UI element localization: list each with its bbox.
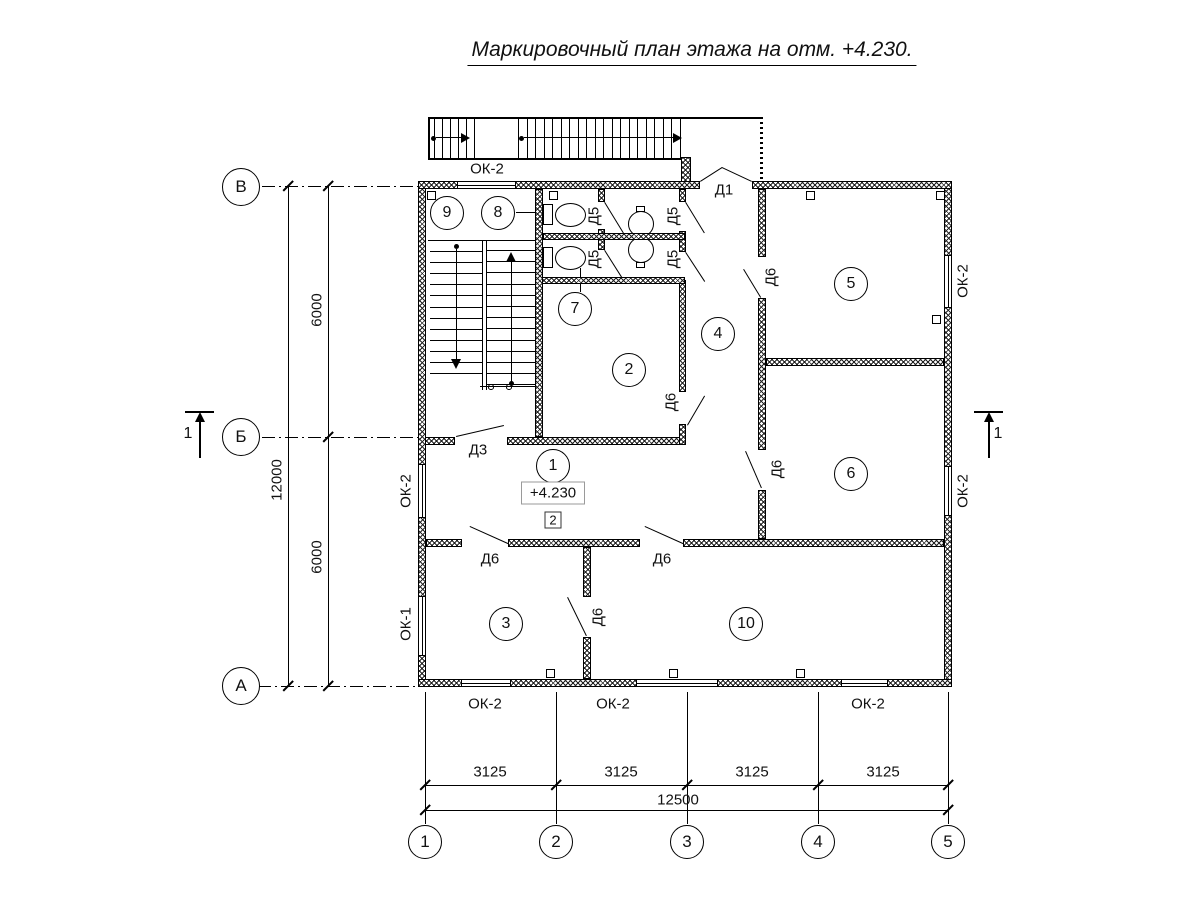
wall-segment <box>944 307 952 467</box>
stair-tread <box>603 117 604 159</box>
stair-tread <box>629 117 630 159</box>
floor-plan-sheet: Маркировочный план этажа на отм. +4.230.… <box>0 0 1200 900</box>
wall-segment <box>679 189 686 202</box>
stair-tread <box>430 295 482 296</box>
door-leaf-line <box>456 425 504 437</box>
room-circle-8: 8 <box>481 196 515 230</box>
wall-segment <box>418 679 462 687</box>
sink-basin <box>628 237 654 263</box>
vent-square <box>806 191 815 200</box>
window-opening <box>462 679 510 687</box>
floor-type-mark: 2 <box>545 512 562 529</box>
vent-square <box>546 669 555 678</box>
wall-segment <box>418 181 458 189</box>
stair-tread <box>487 351 535 352</box>
stair-tread <box>430 329 482 330</box>
stair-arrow-line <box>456 249 457 366</box>
stair-tread <box>430 273 482 274</box>
dim-bottom-segment: 3125 <box>473 765 506 780</box>
stair-tread <box>586 117 587 159</box>
window-label-ok2: ОК-2 <box>956 474 971 508</box>
stair-tread <box>487 295 535 296</box>
stair-tread <box>487 261 535 262</box>
window-label-ok1: ОК-1 <box>399 607 414 641</box>
stair-tread <box>487 340 535 341</box>
room-circle-5: 5 <box>834 267 868 301</box>
axis-col-3: 3 <box>670 825 704 859</box>
stair-stringer <box>482 240 483 390</box>
axis-extension-line <box>948 692 949 824</box>
toilet-bowl <box>555 246 586 270</box>
stair-tread <box>637 117 638 159</box>
door-leaf-line <box>743 269 761 298</box>
stair-tread <box>535 117 536 159</box>
axis-row-v: В <box>222 168 260 206</box>
window-opening <box>637 679 717 687</box>
stair-tread <box>430 351 482 352</box>
stair-outline <box>428 117 762 119</box>
stair-tread <box>434 117 435 159</box>
stair-tread <box>487 284 535 285</box>
room-circle-10: 10 <box>729 607 763 641</box>
wall-segment <box>426 539 462 547</box>
stair-landing-rail <box>760 117 763 181</box>
door-label-d1: Д1 <box>715 183 734 198</box>
toilet-tank <box>543 247 553 268</box>
stair-landing-edge <box>480 386 535 387</box>
axis-col-2: 2 <box>539 825 573 859</box>
wall-segment <box>758 490 766 539</box>
stair-outline <box>428 158 690 160</box>
section-mark-label: 1 <box>994 426 1003 442</box>
marker-dot <box>454 244 459 249</box>
wall-segment <box>583 547 591 597</box>
stair-tread <box>458 117 459 159</box>
wall-segment <box>515 181 700 189</box>
door-leaf-line <box>685 252 705 282</box>
room-circle-1: 1 <box>536 449 570 483</box>
window-label-ok2: ОК-2 <box>851 697 885 712</box>
stair-tread <box>430 318 482 319</box>
vent-square <box>549 191 558 200</box>
door-label-d5: Д5 <box>666 207 681 226</box>
wall-segment <box>681 157 691 183</box>
axis-row-a: А <box>222 667 260 705</box>
window-label-ok2: ОК-2 <box>596 697 630 712</box>
door-label-d5: Д5 <box>587 207 602 226</box>
stair-tread <box>487 328 535 329</box>
vent-square <box>796 669 805 678</box>
stair-tread <box>527 117 528 159</box>
door-label-d3: Д3 <box>469 443 488 458</box>
axis-line <box>262 437 418 438</box>
wall-segment <box>418 181 426 465</box>
stair-tread <box>430 284 482 285</box>
room-circle-6: 6 <box>834 457 868 491</box>
window-label-ok2: ОК-2 <box>399 474 414 508</box>
door-label-d6: Д6 <box>770 460 785 479</box>
stair-tread <box>620 117 621 159</box>
wall-segment <box>766 358 944 366</box>
stair-tread <box>487 384 535 385</box>
stair-tread <box>680 117 681 159</box>
stair-tread <box>654 117 655 159</box>
axis-row-b: Б <box>222 418 260 456</box>
wall-segment <box>717 679 842 687</box>
door-leaf-line <box>745 451 762 488</box>
door-leaf-line <box>567 597 587 637</box>
window-opening <box>418 465 426 517</box>
toilet-bowl <box>555 203 586 227</box>
stair-tread <box>442 117 443 159</box>
door-label-d5: Д5 <box>587 250 602 269</box>
stair-tread <box>430 340 482 341</box>
stair-tread <box>544 117 545 159</box>
door-label-d5: Д5 <box>666 250 681 269</box>
wall-segment <box>535 277 685 284</box>
stair-tread <box>474 117 475 159</box>
stair-outline <box>428 117 430 159</box>
stair-tread <box>663 117 664 159</box>
dim-bottom-segment: 3125 <box>735 765 768 780</box>
stair-tread <box>430 251 482 252</box>
axis-extension-line <box>818 692 819 824</box>
stair-tread <box>646 117 647 159</box>
wall-segment <box>583 637 591 679</box>
stair-stringer <box>486 240 487 390</box>
window-label-ok2: ОК-2 <box>470 162 504 177</box>
stair-tread <box>595 117 596 159</box>
wall-segment <box>679 424 686 445</box>
axis-extension-line <box>556 692 557 824</box>
window-label-ok2: ОК-2 <box>468 697 502 712</box>
wall-segment <box>944 515 952 687</box>
leader-line <box>516 212 536 213</box>
axis-extension-line <box>425 692 426 824</box>
stair-tread <box>430 262 482 263</box>
stair-tread <box>569 117 570 159</box>
section-mark-line <box>988 414 990 458</box>
drawing-title: Маркировочный план этажа на отм. +4.230. <box>467 38 916 66</box>
dim-bottom-segment: 3125 <box>866 765 899 780</box>
wall-segment <box>944 181 952 256</box>
section-mark-label: 1 <box>184 426 193 442</box>
section-mark-bar <box>185 411 214 413</box>
wall-segment <box>507 437 686 445</box>
wall-segment <box>758 189 766 257</box>
axis-col-4: 4 <box>801 825 835 859</box>
stair-tread <box>430 307 482 308</box>
stair-outline <box>428 240 535 241</box>
wall-segment <box>508 539 640 547</box>
stair-tread <box>487 362 535 363</box>
marker-dot <box>519 136 524 141</box>
window-opening <box>842 679 887 687</box>
dim-left-total: 12000 <box>270 459 285 501</box>
door-leaf-line <box>470 526 508 544</box>
stair-tread <box>518 117 519 159</box>
wall-segment <box>758 298 766 450</box>
window-opening <box>418 597 426 655</box>
wall-segment <box>510 679 637 687</box>
section-mark-line <box>199 414 201 458</box>
wall-segment <box>418 517 426 597</box>
wall-segment <box>598 189 605 202</box>
window-label-ok2: ОК-2 <box>956 264 971 298</box>
stair-tread <box>487 250 535 251</box>
room-circle-9: 9 <box>430 196 464 230</box>
dim-bottom-total: 12500 <box>657 793 699 808</box>
wall-segment <box>683 539 944 547</box>
axis-col-5: 5 <box>931 825 965 859</box>
wall-segment <box>543 233 685 240</box>
window-opening <box>944 467 952 515</box>
wall-segment <box>679 280 686 392</box>
window-opening <box>944 256 952 307</box>
door-label-d6: Д6 <box>591 608 606 627</box>
stair-tread <box>450 117 451 159</box>
stair-tread <box>430 373 482 374</box>
door-label-d6: Д6 <box>481 552 500 567</box>
wall-segment <box>752 181 952 189</box>
vent-square <box>427 191 436 200</box>
stair-tread <box>578 117 579 159</box>
stair-tread <box>612 117 613 159</box>
stair-arrow-line <box>436 137 468 138</box>
door-label-d6: Д6 <box>653 552 672 567</box>
toilet-tank <box>543 204 553 225</box>
wall-segment <box>887 679 952 687</box>
stair-tread <box>561 117 562 159</box>
stair-tread <box>430 362 482 363</box>
stair-tread <box>671 117 672 159</box>
window-opening <box>458 181 515 189</box>
vent-square <box>932 315 941 324</box>
door-leaf-line <box>721 167 751 182</box>
room-circle-3: 3 <box>489 607 523 641</box>
dim-left-segment: 6000 <box>310 540 325 573</box>
door-leaf-line <box>604 202 624 233</box>
door-label-d6: Д6 <box>664 393 679 412</box>
section-mark-bar <box>974 411 1003 413</box>
stair-tread <box>466 117 467 159</box>
stair-tread <box>487 317 535 318</box>
door-leaf-line <box>700 167 723 182</box>
door-leaf-line <box>687 396 705 426</box>
dim-left-segment: 6000 <box>310 293 325 326</box>
wall-segment <box>535 189 543 437</box>
axis-line <box>262 186 418 187</box>
dim-bottom-segment: 3125 <box>604 765 637 780</box>
stair-tread <box>487 373 535 374</box>
door-leaf-line <box>685 202 705 233</box>
room-circle-4: 4 <box>701 317 735 351</box>
door-leaf-line <box>645 526 683 544</box>
room-circle-7: 7 <box>558 292 592 326</box>
stair-tread <box>487 306 535 307</box>
vent-square <box>669 669 678 678</box>
room-circle-2: 2 <box>612 353 646 387</box>
stair-tread <box>552 117 553 159</box>
axis-col-1: 1 <box>408 825 442 859</box>
elevation-mark: +4.230 <box>521 482 585 505</box>
stair-tread <box>487 272 535 273</box>
door-label-d6: Д6 <box>764 268 779 287</box>
stair-arrow-line <box>511 255 512 385</box>
